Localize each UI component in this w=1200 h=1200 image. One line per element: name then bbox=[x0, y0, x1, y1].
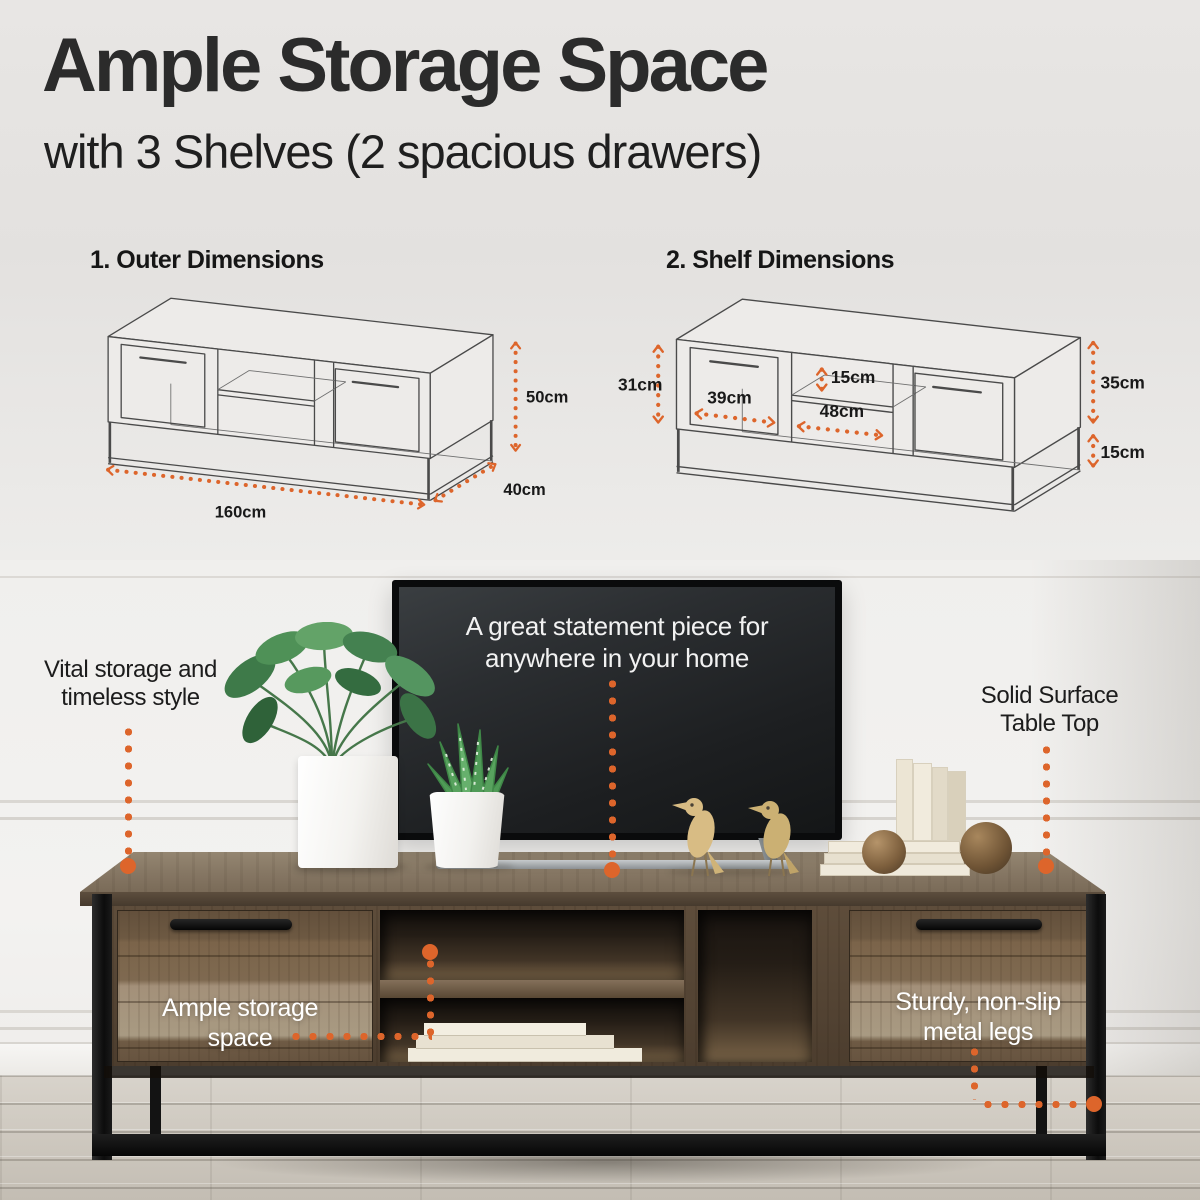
callout-right-connector bbox=[1042, 744, 1051, 862]
outer-dimensions-drawing: 50cm 160cm 40cm bbox=[82, 279, 587, 523]
tv-caption: A great statement piece for anywhere in … bbox=[442, 587, 792, 674]
wall-crown-line bbox=[0, 576, 1200, 578]
standing-book bbox=[932, 767, 948, 841]
bird-figurines bbox=[662, 792, 802, 878]
callout-legs-connector-v bbox=[970, 1046, 979, 1100]
callout-right-endpoint bbox=[1038, 858, 1054, 874]
right-metal-leg bbox=[1086, 894, 1106, 1160]
tv-caption-endpoint bbox=[604, 862, 620, 878]
callout-left-endpoint bbox=[120, 858, 136, 874]
book-display bbox=[818, 756, 1018, 876]
diagram-shelf-dimensions: 2. Shelf Dimensions bbox=[618, 246, 1158, 535]
right-drawer-handle bbox=[916, 919, 1042, 930]
callout-storage: Ample storage space bbox=[142, 994, 338, 1053]
lifestyle-photo: A great statement piece for anywhere in … bbox=[0, 560, 1200, 1200]
diagram-shelf-label: 2. Shelf Dimensions bbox=[666, 246, 1158, 275]
diagram-outer-dimensions: 1. Outer Dimensions bbox=[82, 246, 587, 523]
left-metal-leg bbox=[92, 894, 112, 1160]
wood-sphere-large bbox=[960, 822, 1012, 874]
shelf-right-height-label: 35cm bbox=[1100, 373, 1144, 393]
wood-sphere-small bbox=[862, 830, 906, 874]
standing-book bbox=[913, 763, 932, 841]
shelf-left-height-label: 31cm bbox=[618, 375, 662, 395]
infographic-page: Ample Storage Space with 3 Shelves (2 sp… bbox=[0, 0, 1200, 1200]
callout-storage-connector-h bbox=[290, 1032, 432, 1041]
frame-under-body bbox=[104, 1066, 1094, 1078]
shelf-dimensions-drawing: 31cm 39cm 15cm 48cm 35cm 15cm bbox=[618, 279, 1148, 535]
callout-legs-connector-h bbox=[982, 1100, 1088, 1109]
callout-legs: Sturdy, non-slip metal legs bbox=[878, 988, 1078, 1047]
outer-width-label: 160cm bbox=[215, 503, 266, 522]
tv-caption-connector bbox=[608, 678, 617, 866]
outer-depth-label: 40cm bbox=[503, 480, 545, 499]
outer-depth-arrow bbox=[436, 465, 495, 501]
book bbox=[416, 1035, 614, 1049]
tv-unit-tabletop-edge bbox=[80, 892, 1105, 906]
book bbox=[424, 1023, 586, 1036]
outer-height-label: 50cm bbox=[526, 388, 568, 407]
callout-left-connector bbox=[124, 726, 133, 862]
header-section: Ample Storage Space with 3 Shelves (2 sp… bbox=[0, 0, 1200, 560]
bottom-frame-bar bbox=[92, 1134, 1106, 1156]
shelf-gap-label: 15cm bbox=[831, 367, 875, 387]
callout-storage-connector-v bbox=[426, 958, 435, 1038]
callout-left: Vital storage and timeless style bbox=[28, 656, 233, 713]
monstera-plant bbox=[212, 622, 452, 768]
diagram-outer-label: 1. Outer Dimensions bbox=[90, 246, 587, 275]
book bbox=[408, 1048, 642, 1062]
books-in-shelf bbox=[408, 1002, 658, 1062]
callout-right: Solid Surface Table Top bbox=[952, 682, 1147, 739]
shelf-drawer-width-label: 39cm bbox=[707, 387, 751, 407]
shelf-middle-width-label: 48cm bbox=[820, 401, 864, 421]
callout-storage-endpoint bbox=[422, 944, 438, 960]
left-drawer-handle bbox=[170, 919, 292, 930]
succulent-pot bbox=[427, 792, 507, 868]
monstera-pot bbox=[298, 756, 398, 868]
open-shelf-right bbox=[698, 910, 812, 1062]
standing-book bbox=[896, 759, 913, 841]
succulent-plant bbox=[418, 718, 518, 798]
standing-book bbox=[948, 771, 966, 841]
page-subtitle: with 3 Shelves (2 spacious drawers) bbox=[44, 124, 761, 179]
callout-legs-endpoint bbox=[1086, 1096, 1102, 1112]
shelf-leg-height-label: 15cm bbox=[1100, 442, 1144, 462]
page-title: Ample Storage Space bbox=[42, 22, 766, 109]
